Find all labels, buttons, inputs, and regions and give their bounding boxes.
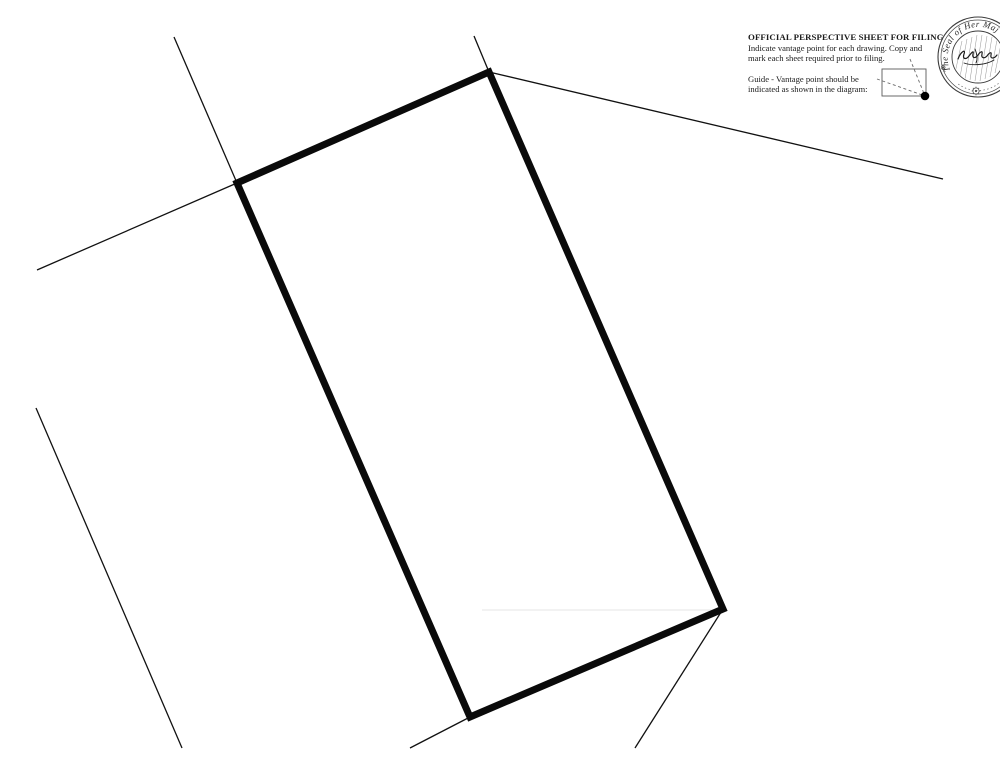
perspective-drawing [0,0,1000,784]
perspective-sheet-page: OFFICIAL PERSPECTIVE SHEET FOR FILING In… [0,0,1000,784]
seal-signature-squiggle [958,49,997,65]
perspective-guide-line [174,37,237,183]
perspective-guide-line [37,183,237,270]
guide-sightline-top [910,59,925,96]
seal-arc-text-label: The Seal of Her Maj [940,19,1000,74]
guide-sightline-left [877,79,925,96]
perspective-rectangle [237,72,723,717]
official-seal: The Seal of Her Maj ⊕ [928,7,1000,107]
perspective-guide-line [410,717,470,748]
perspective-guide-line [474,36,489,72]
seal-rosette-icon [972,87,981,96]
vantage-guide-diagram [874,56,932,104]
page-title: OFFICIAL PERSPECTIVE SHEET FOR FILING [748,32,943,42]
perspective-guide-line [36,408,182,748]
instruction-line-1: Indicate vantage point for each drawing.… [748,43,943,53]
